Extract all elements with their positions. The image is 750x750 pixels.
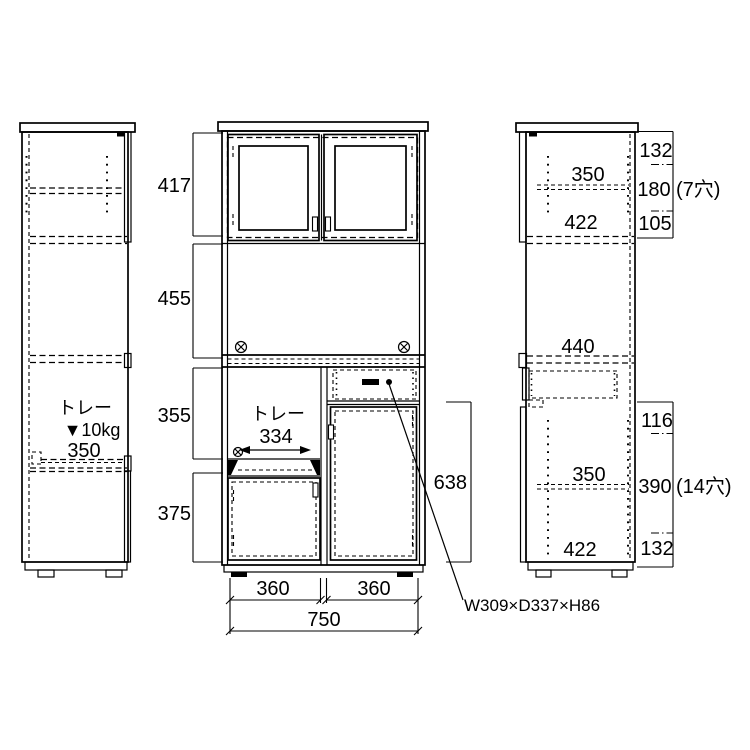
background	[0, 0, 750, 750]
dim-375-label: 375	[158, 503, 191, 525]
dim-180-label: 180	[637, 179, 670, 201]
dim-132-top-label: 132	[639, 140, 672, 162]
upper-left-door-handle	[313, 217, 318, 231]
left-tray-width: 350	[67, 440, 100, 462]
dim-638-label: 638	[434, 472, 467, 494]
dim-132-bottom-label: 132	[640, 538, 673, 560]
dim-105-label: 105	[638, 213, 671, 235]
dim-390-label: 390	[638, 476, 671, 498]
dim-355-label: 355	[158, 405, 191, 427]
dim-417-label: 417	[158, 175, 191, 197]
right-upper-shelf-width-label: 350	[571, 164, 604, 186]
dim-116-label: 116	[641, 410, 673, 432]
right-lower-shelf-width-label: 350	[572, 464, 605, 486]
left-upper-handle-mark	[117, 133, 125, 137]
right-lower-inner-width-label: 422	[563, 539, 596, 561]
left-tray-capacity: ▼10kg	[64, 420, 121, 440]
niche-tray-width: 334	[259, 426, 292, 448]
right-inner-top-width-label: 440	[561, 336, 594, 358]
dim-360-right-label: 360	[357, 578, 390, 600]
dim-750-label: 750	[307, 609, 340, 631]
left-tray-label: トレー	[58, 398, 112, 418]
diagram-canvas: トレー ▼10kg 350	[0, 0, 750, 750]
cabinet-dimension-diagram: トレー ▼10kg 350	[0, 0, 750, 750]
holes-14-label: (14穴)	[676, 475, 732, 498]
right-upper-handle-mark	[529, 133, 537, 137]
dim-360-left-label: 360	[256, 578, 289, 600]
dim-455-label: 455	[158, 288, 191, 310]
drawer-handle	[362, 379, 379, 385]
lower-left-door-handle	[313, 483, 318, 497]
holes-7-label: (7穴)	[676, 178, 720, 201]
drawer-note-label: W309×D337×H86	[464, 596, 600, 615]
upper-right-door-handle	[326, 217, 331, 231]
lower-right-door-handle	[329, 425, 334, 439]
right-upper-inner-width-label: 422	[564, 212, 597, 234]
niche-tray-label: トレー	[251, 404, 305, 424]
